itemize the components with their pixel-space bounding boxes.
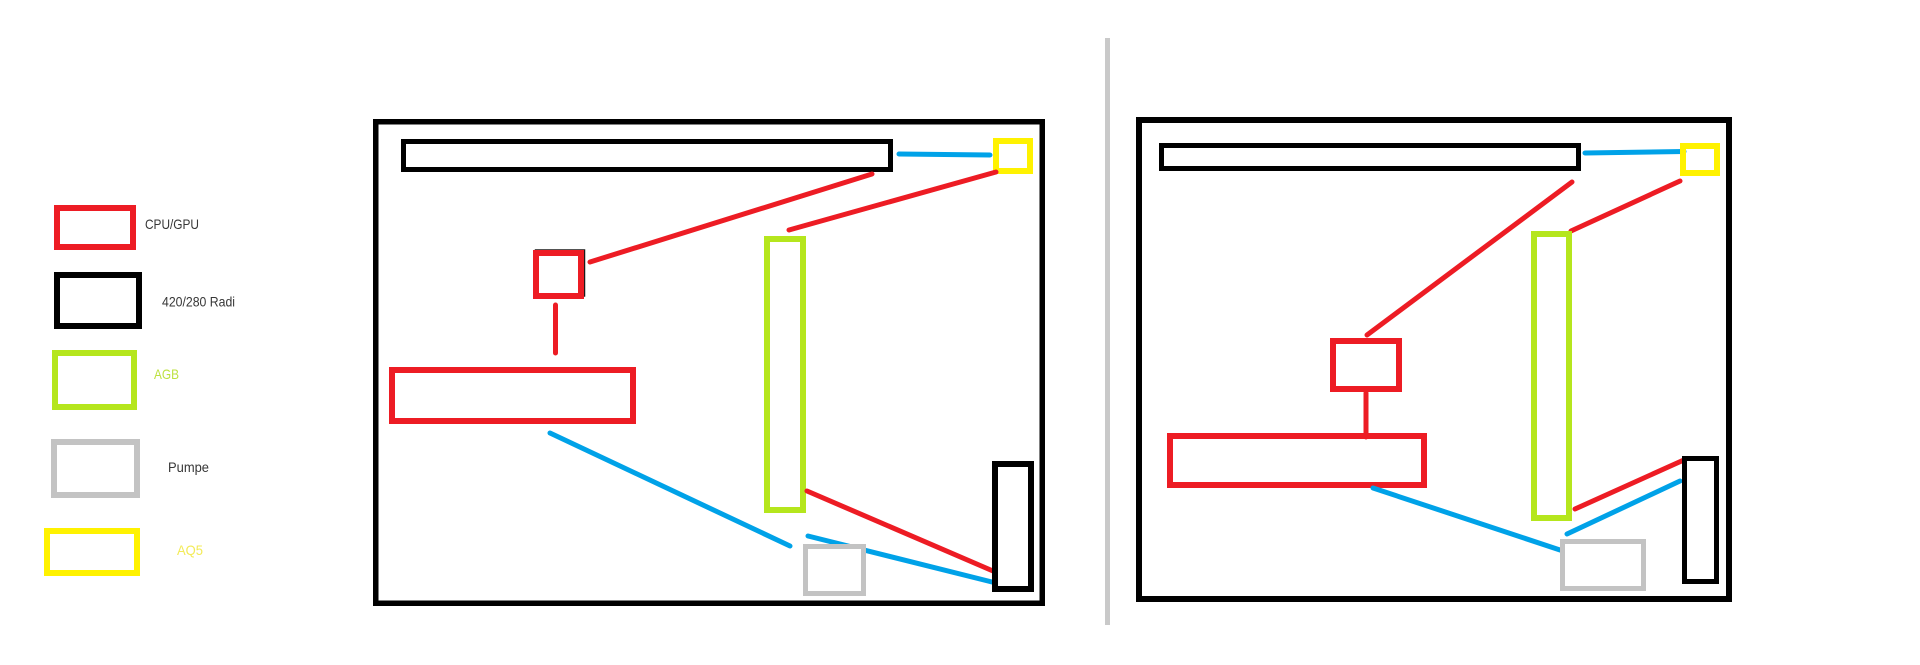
svg-text:AGB: AGB	[154, 366, 179, 382]
svg-text:Pumpe: Pumpe	[168, 459, 209, 475]
svg-text:AQ5: AQ5	[177, 542, 203, 558]
svg-text:420/280 Radi: 420/280 Radi	[162, 294, 235, 310]
svg-text:CPU/GPU: CPU/GPU	[145, 216, 199, 232]
